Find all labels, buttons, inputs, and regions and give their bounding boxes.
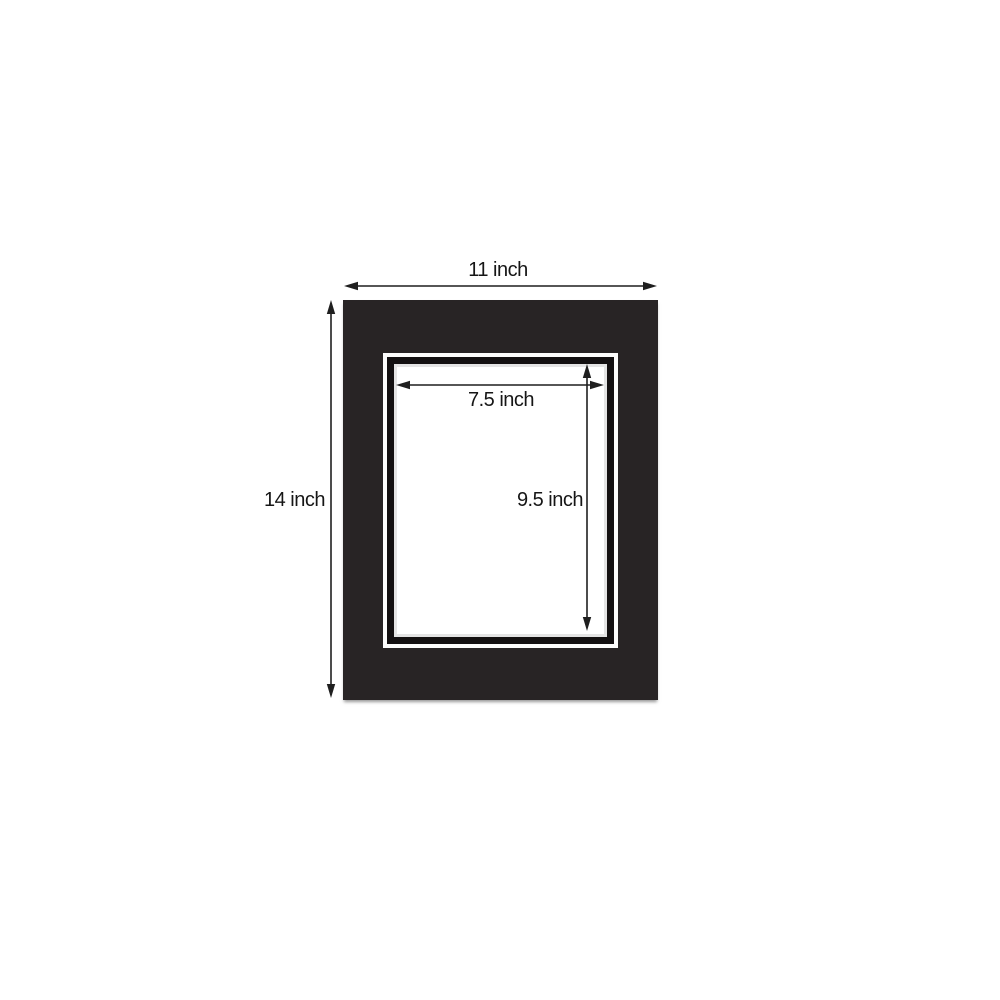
outer-height-arrow: [327, 300, 335, 698]
mat-board: [343, 300, 658, 700]
outer-height-label: 14 inch: [264, 489, 325, 511]
opening-height-label: 9.5 inch: [517, 489, 583, 511]
opening-width-label: 7.5 inch: [468, 389, 534, 411]
mat-dimension-diagram: 11 inch 14 inch 7.5 inch 9.5 inch: [0, 0, 1000, 1000]
outer-width-arrow: [344, 282, 657, 290]
outer-width-label: 11 inch: [468, 259, 528, 281]
